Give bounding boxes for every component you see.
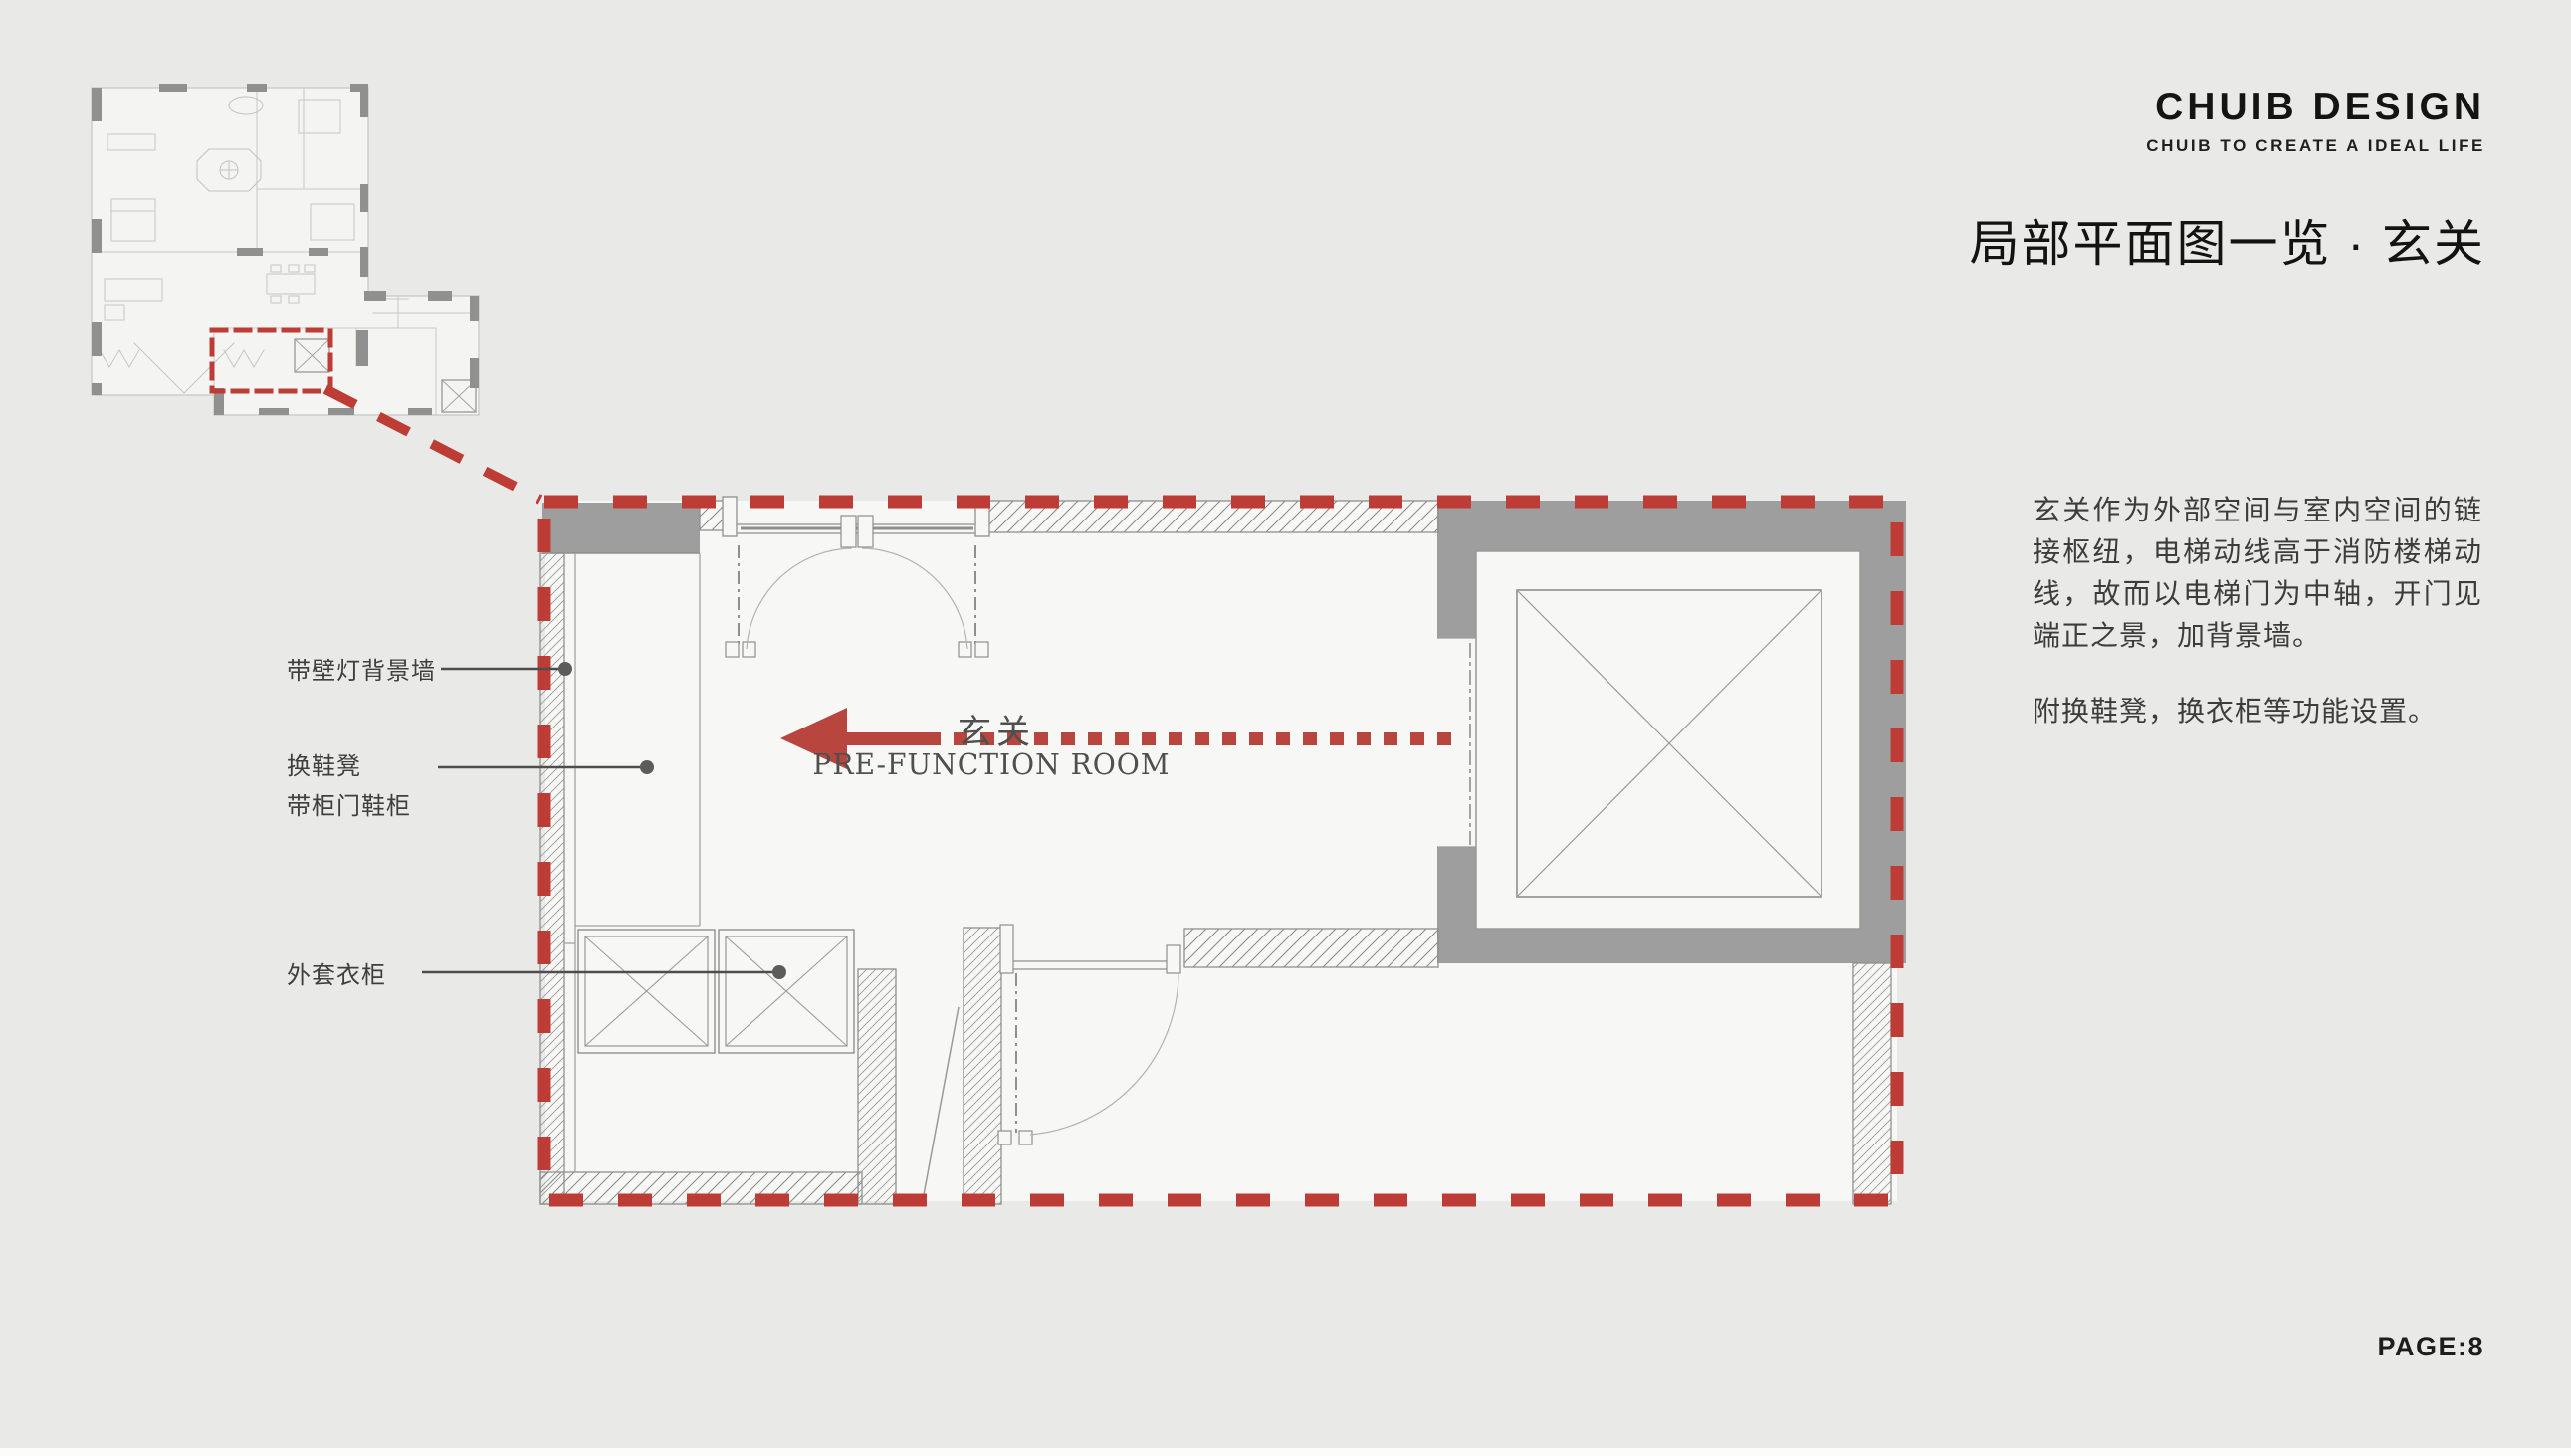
room-label-cn: 玄关 xyxy=(958,705,1035,753)
page-number: PAGE:8 xyxy=(2377,1332,2484,1362)
brand-tagline: CHUIB TO CREATE A IDEAL LIFE xyxy=(2146,136,2485,156)
bottom-edge-strip xyxy=(0,1448,2571,1456)
description-paragraph-1: 玄关作为外部空间与室内空间的链接枢纽，电梯动线高于消防楼梯动线，故而以电梯门为中… xyxy=(2033,490,2482,657)
page-title: 局部平面图一览 · 玄关 xyxy=(1970,215,2485,273)
detail-floorplan xyxy=(540,497,1906,1204)
overview-floorplan-thumbnail xyxy=(92,84,479,415)
annotation-coat-closet: 外套衣柜 xyxy=(287,956,386,996)
room-label-en: PRE-FUNCTION ROOM xyxy=(812,747,1170,781)
annotation-feature-wall: 带壁灯背景墙 xyxy=(287,652,436,692)
description-block: 玄关作为外部空间与室内空间的链接枢纽，电梯动线高于消防楼梯动线，故而以电梯门为中… xyxy=(2033,490,2482,732)
elevator-shaft xyxy=(1437,551,1860,929)
brand-logo: CHUIB DESIGN xyxy=(2146,88,2485,127)
brand-block: CHUIB DESIGN CHUIB TO CREATE A IDEAL LIF… xyxy=(2146,88,2485,156)
description-paragraph-2: 附换鞋凳，换衣柜等功能设置。 xyxy=(2033,691,2482,732)
annotation-shoe-bench-cabinet: 换鞋凳 带柜门鞋柜 xyxy=(287,747,411,827)
